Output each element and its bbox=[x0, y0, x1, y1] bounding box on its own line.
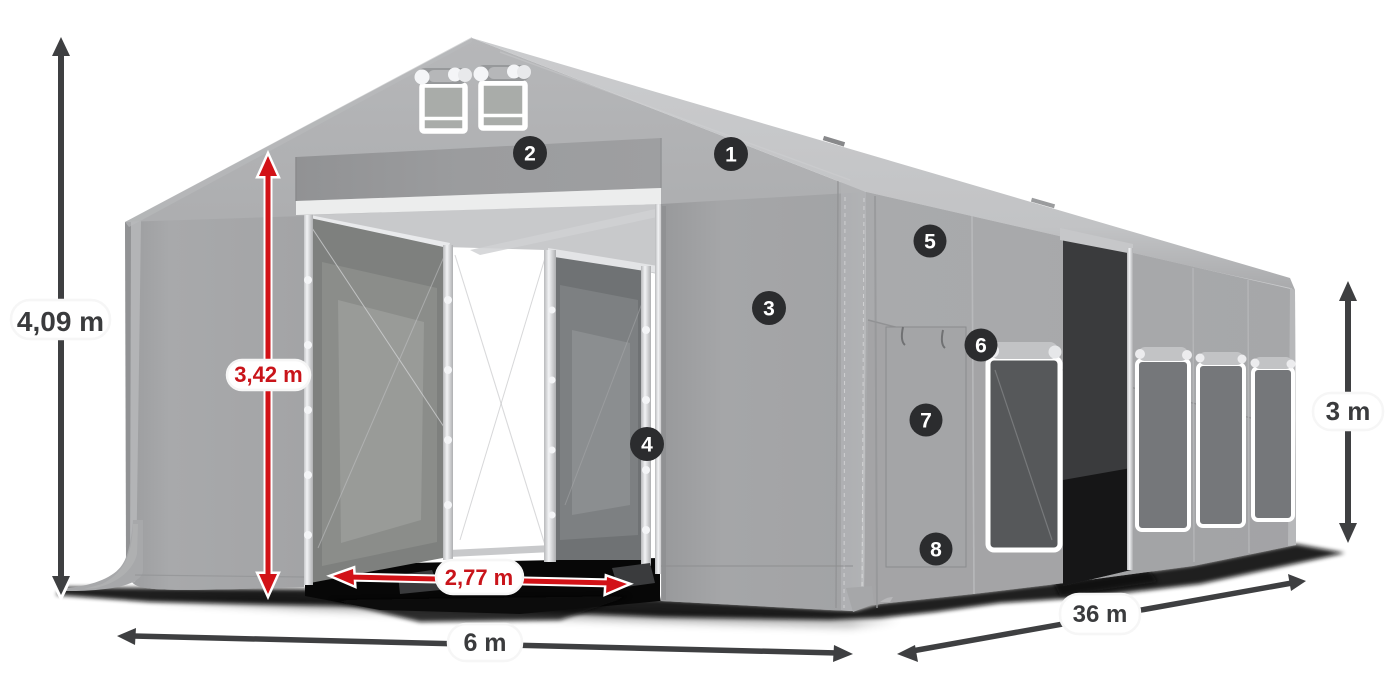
svg-text:7: 7 bbox=[920, 410, 932, 433]
svg-text:6: 6 bbox=[975, 335, 987, 358]
svg-text:36 m: 36 m bbox=[1073, 601, 1128, 628]
svg-text:3: 3 bbox=[763, 298, 775, 321]
svg-text:1: 1 bbox=[725, 144, 737, 167]
svg-text:3 m: 3 m bbox=[1326, 396, 1371, 426]
svg-text:4,09 m: 4,09 m bbox=[17, 306, 104, 337]
svg-text:2,77 m: 2,77 m bbox=[445, 565, 514, 590]
svg-text:2: 2 bbox=[524, 143, 536, 166]
svg-text:5: 5 bbox=[924, 231, 936, 254]
svg-text:4: 4 bbox=[641, 434, 653, 457]
svg-text:6 m: 6 m bbox=[463, 629, 506, 657]
svg-text:8: 8 bbox=[930, 539, 942, 562]
svg-text:3,42 m: 3,42 m bbox=[234, 362, 303, 387]
